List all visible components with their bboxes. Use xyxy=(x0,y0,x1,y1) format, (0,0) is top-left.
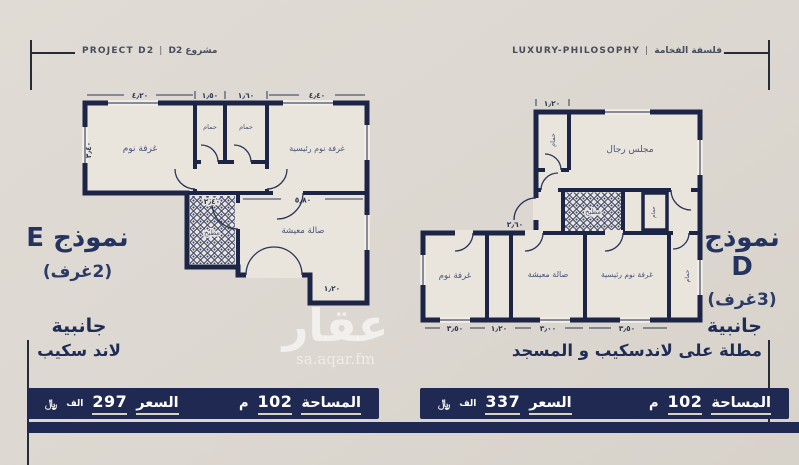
dim-bedroom-d: ٣٫٥٠ xyxy=(447,324,464,333)
dim-master-d: ٣٫٥٠ xyxy=(619,324,636,333)
project-name-en: PROJECT D2 xyxy=(82,46,154,56)
room-bath1: حمام xyxy=(203,123,217,131)
bottom-strip xyxy=(28,422,799,433)
floor-plan-model-d: ١٫٢٠ ٢٫٦٠ ٣٫٥٠ ١٫٢٠ ٣٫٠٠ ٣٫٥٠ مجلس رجال … xyxy=(405,90,715,350)
dim-bath1: ١٫٥٠ xyxy=(202,91,219,100)
dim-depth: ٣٫٤٠ xyxy=(84,142,93,159)
dim-bedroom: ٤٫٢٠ xyxy=(132,91,149,100)
price-thousand-e: الف xyxy=(66,399,83,409)
room-kitchen: مطبخ xyxy=(204,229,220,237)
stats-bar-d: المساحة 102 م السعر 337 الف ﷼ xyxy=(420,388,789,419)
area-unit-d: م xyxy=(649,396,659,411)
floor-plan-model-e: ٤٫٢٠ ١٫٥٠ ١٫٦٠ ٤٫٤٠ ٥٫٨٠ ٢٫٤٠ ١٫٢٠ ٣٫٤٠ … xyxy=(78,85,378,320)
dim-living: ٥٫٨٠ xyxy=(295,196,312,205)
frame-line-top-right xyxy=(768,40,770,90)
frame-tick-top-left xyxy=(31,52,75,54)
dim-entry: ١٫٢٠ xyxy=(324,284,341,293)
price-value-e: 297 xyxy=(92,392,127,415)
room-bath-mid: حمام xyxy=(651,206,657,218)
dim-kitchen-d: ٢٫٦٠ xyxy=(507,220,524,229)
riyal-symbol-d: ﷼ xyxy=(438,397,450,411)
area-unit-e: م xyxy=(239,396,249,411)
area-label-e: المساحة xyxy=(301,395,361,415)
area-group-e: المساحة 102 م xyxy=(239,392,361,415)
room-bedroom-d: غرفة نوم xyxy=(439,271,472,281)
room-kitchen-d: مطبخ xyxy=(585,208,601,216)
price-thousand-d: الف xyxy=(459,399,476,409)
room-master: غرفة نوم رئيسية xyxy=(289,144,344,153)
price-group-e: السعر 297 الف ﷼ xyxy=(45,392,179,415)
dim-living-d: ٣٫٠٠ xyxy=(540,324,557,333)
price-group-d: السعر 337 الف ﷼ xyxy=(438,392,572,415)
price-label-d: السعر xyxy=(529,395,571,415)
price-label-e: السعر xyxy=(136,395,178,415)
poster: PROJECT D2|مشروع D2 LUXURY-PHILOSOPHY|فل… xyxy=(0,0,799,465)
header-right: LUXURY-PHILOSOPHY|فلسفة الفخامة xyxy=(512,46,722,56)
dim-corridor-d: ١٫٢٠ xyxy=(491,324,508,333)
area-label-d: المساحة xyxy=(711,395,771,415)
area-value-d: 102 xyxy=(668,392,703,415)
dim-bath2: ١٫٦٠ xyxy=(238,91,255,100)
view-e: لاند سكيب xyxy=(18,340,140,362)
room-living: صالة معيشة xyxy=(281,226,324,236)
room-bath2: حمام xyxy=(239,123,253,131)
area-value-e: 102 xyxy=(258,392,293,415)
slogan-ar: فلسفة الفخامة xyxy=(654,46,722,56)
header-separator: | xyxy=(159,46,163,56)
stats-bar-e: المساحة 102 م السعر 297 الف ﷼ xyxy=(27,388,379,419)
frame-line-top-left xyxy=(30,40,32,90)
room-master-d: غرفة نوم رئيسية xyxy=(601,270,653,279)
area-group-d: المساحة 102 م xyxy=(649,392,771,415)
frame-tick-top-right xyxy=(724,52,768,54)
room-bedroom: غرفة نوم xyxy=(123,144,158,154)
header-left: PROJECT D2|مشروع D2 xyxy=(82,46,217,56)
watermark-site: sa.aqar.fm xyxy=(263,350,408,368)
room-living-d: صالة معيشة xyxy=(528,270,569,279)
dim-master: ٤٫٤٠ xyxy=(309,91,326,100)
project-name-ar: مشروع D2 xyxy=(169,46,218,56)
room-majlis: مجلس رجال xyxy=(606,145,653,155)
dim-bath-top: ١٫٢٠ xyxy=(544,99,561,108)
room-bath-top: حمام xyxy=(549,133,557,147)
header-separator-right: | xyxy=(645,46,649,56)
orientation-e-block: جانبية لاند سكيب xyxy=(18,314,140,362)
price-value-d: 337 xyxy=(485,392,520,415)
slogan-en: LUXURY-PHILOSOPHY xyxy=(512,46,640,56)
room-bath-right: حمام xyxy=(684,269,691,282)
riyal-symbol-e: ﷼ xyxy=(45,397,57,411)
dim-kitchen: ٢٫٤٠ xyxy=(204,197,221,206)
